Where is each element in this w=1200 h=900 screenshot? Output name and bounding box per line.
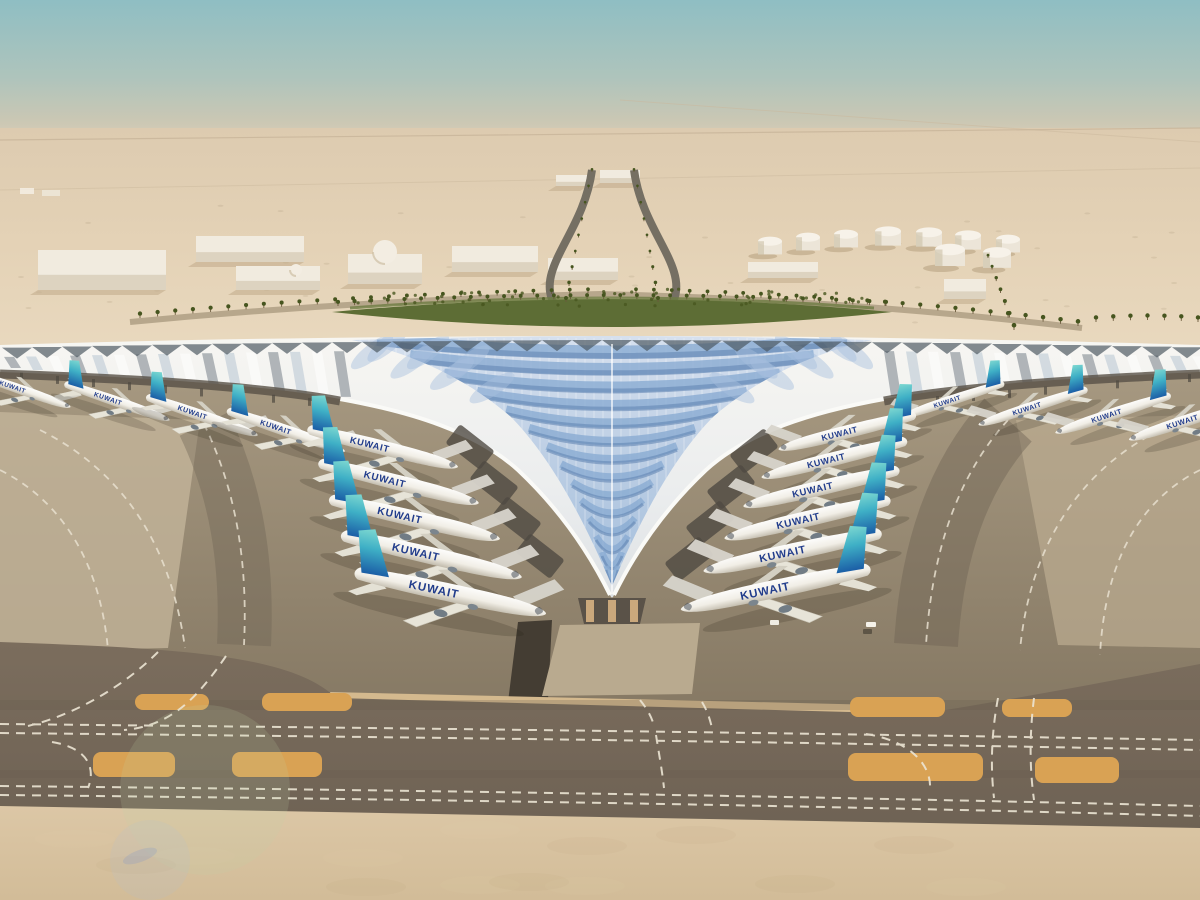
- palm-canopy: [1023, 313, 1027, 317]
- palm-canopy: [830, 296, 834, 300]
- dome: [290, 264, 302, 276]
- scene-svg: KUWAIT KUWAIT: [0, 0, 1200, 900]
- scrub: [18, 276, 24, 278]
- palm-canopy: [651, 265, 654, 268]
- scrub: [915, 286, 921, 288]
- palm-canopy: [552, 293, 556, 297]
- sand-island: [848, 753, 983, 781]
- vehicle-shadow: [863, 629, 872, 634]
- shrub: [574, 298, 577, 301]
- palm-canopy: [953, 306, 957, 310]
- shrub: [746, 295, 749, 298]
- scrub: [1151, 257, 1157, 259]
- palm-canopy: [535, 294, 539, 298]
- palm-canopy: [768, 295, 772, 299]
- palm-canopy: [564, 296, 568, 300]
- scrub: [1169, 232, 1175, 234]
- scrub: [85, 222, 91, 224]
- palm-canopy: [987, 254, 990, 257]
- shrub: [844, 301, 847, 304]
- palm-canopy: [795, 294, 799, 298]
- palm-canopy: [652, 293, 656, 297]
- palm-canopy: [818, 297, 822, 301]
- scrub: [1171, 282, 1177, 284]
- palm-canopy: [867, 299, 871, 303]
- palm-canopy: [244, 303, 248, 307]
- service-vehicle: [770, 620, 779, 625]
- building: [188, 236, 304, 267]
- palm-canopy: [723, 290, 727, 294]
- palm-canopy: [477, 291, 481, 295]
- sky: [0, 0, 1200, 140]
- palm-canopy: [138, 311, 142, 315]
- palm-canopy: [336, 300, 340, 304]
- pavement-stain: [545, 877, 625, 895]
- palm-canopy: [353, 299, 357, 303]
- shrub: [578, 305, 581, 308]
- palm-canopy: [486, 295, 490, 299]
- scrub: [819, 289, 825, 291]
- shrub: [823, 292, 826, 295]
- scrub: [303, 295, 309, 297]
- scrub: [1132, 236, 1138, 238]
- gate-mullion: [1044, 387, 1047, 395]
- gate-mullion: [1116, 380, 1119, 388]
- pavement-stain: [755, 875, 835, 893]
- sand-island: [1035, 757, 1119, 783]
- scrub: [1064, 305, 1070, 307]
- palm-canopy: [971, 307, 975, 311]
- palm-canopy: [469, 295, 473, 299]
- shrub: [740, 303, 743, 306]
- palm-canopy: [532, 289, 536, 293]
- entrance-column: [608, 600, 616, 622]
- palm-canopy: [851, 298, 855, 302]
- palm-canopy: [991, 265, 994, 268]
- palm-canopy: [995, 276, 998, 279]
- scrub: [324, 263, 330, 265]
- shrub: [706, 298, 709, 301]
- palm-canopy: [226, 304, 230, 308]
- palm-canopy: [191, 307, 195, 311]
- shrub: [677, 288, 680, 291]
- concrete-apron-left: [0, 412, 200, 652]
- palm-canopy: [988, 309, 992, 313]
- scrub: [1084, 212, 1090, 214]
- airport-rendering: KUWAIT KUWAIT: [0, 0, 1200, 900]
- palm-canopy: [801, 296, 805, 300]
- palm-canopy: [262, 302, 266, 306]
- palm-canopy: [668, 293, 672, 297]
- pavement-stain: [926, 878, 1006, 896]
- scrub: [646, 256, 652, 258]
- terminal-entrance: [578, 598, 646, 624]
- palm-canopy: [1128, 314, 1132, 318]
- palm-canopy: [706, 289, 710, 293]
- palm-canopy: [568, 288, 572, 292]
- palm-canopy: [567, 281, 571, 285]
- shrub: [433, 302, 436, 305]
- shrub: [693, 302, 696, 305]
- palm-canopy: [649, 250, 652, 253]
- palm-canopy: [423, 293, 427, 297]
- scrub: [26, 307, 32, 309]
- scrub: [728, 282, 734, 284]
- palm-canopy: [701, 294, 705, 298]
- sand-island: [850, 697, 945, 717]
- shrub: [357, 301, 360, 304]
- shrub: [441, 300, 444, 303]
- scrub: [398, 212, 404, 214]
- shrub: [507, 290, 510, 293]
- palm-canopy: [1145, 313, 1149, 317]
- scrub: [1161, 308, 1167, 310]
- shrub: [624, 303, 627, 306]
- palm-canopy: [591, 168, 594, 171]
- shrub: [767, 290, 770, 293]
- palm-canopy: [633, 168, 636, 171]
- palm-canopy: [685, 294, 689, 298]
- distant-structure: [42, 190, 60, 196]
- palm-canopy: [784, 296, 788, 300]
- shrub: [506, 303, 509, 306]
- palm-canopy: [777, 293, 781, 297]
- service-vehicle: [866, 622, 876, 627]
- palm-canopy: [550, 288, 554, 292]
- scrub: [912, 321, 918, 323]
- palm-canopy: [569, 293, 573, 297]
- pavement-stain: [874, 836, 954, 854]
- palm-canopy: [1012, 323, 1017, 328]
- palm-canopy: [1041, 315, 1045, 319]
- gate-mullion: [272, 395, 275, 403]
- scrub: [629, 276, 635, 278]
- palm-canopy: [656, 296, 660, 300]
- palm-canopy: [577, 233, 580, 236]
- palm-canopy: [1076, 319, 1081, 324]
- entrance-column: [586, 600, 594, 622]
- scrub: [1034, 247, 1040, 249]
- shrub: [488, 299, 491, 302]
- shrub: [542, 297, 545, 300]
- palm-canopy: [571, 265, 574, 268]
- palm-canopy: [519, 294, 523, 298]
- sand-island: [262, 693, 352, 711]
- palm-canopy: [636, 184, 639, 187]
- gate-mullion: [1188, 374, 1191, 382]
- palm-canopy: [1003, 299, 1007, 303]
- shrub: [556, 303, 559, 306]
- palm-canopy: [652, 288, 656, 292]
- palm-canopy: [1094, 315, 1098, 319]
- palm-canopy: [502, 294, 506, 298]
- palm-canopy: [1179, 314, 1183, 318]
- shrub: [383, 297, 386, 300]
- palm-canopy: [718, 294, 722, 298]
- palm-canopy: [280, 301, 284, 305]
- scrub: [1043, 299, 1049, 301]
- shrub: [392, 292, 395, 295]
- scrub: [632, 285, 638, 287]
- pavement-stain: [656, 826, 736, 844]
- pavement-stain: [323, 849, 403, 867]
- gate-mullion: [92, 379, 95, 387]
- palm-canopy: [155, 310, 159, 314]
- palm-canopy: [402, 297, 406, 301]
- palm-canopy: [441, 292, 445, 296]
- scrub: [218, 205, 224, 207]
- palm-canopy: [654, 281, 658, 285]
- palm-canopy: [646, 233, 649, 236]
- palm-canopy: [1162, 314, 1166, 318]
- palm-canopy: [459, 291, 463, 295]
- palm-canopy: [901, 301, 905, 305]
- palm-canopy: [999, 287, 1003, 291]
- scrub: [107, 301, 113, 303]
- building: [228, 266, 320, 295]
- palm-canopy: [587, 184, 590, 187]
- pavement-stain: [440, 821, 520, 839]
- palm-canopy: [812, 295, 816, 299]
- scrub: [278, 210, 284, 212]
- shrub: [557, 295, 560, 298]
- shrub: [613, 292, 616, 295]
- dome: [373, 240, 397, 264]
- palm-canopy: [513, 289, 517, 293]
- shrub: [857, 300, 860, 303]
- palm-canopy: [751, 295, 755, 299]
- palm-canopy: [297, 299, 301, 303]
- palm-canopy: [419, 296, 423, 300]
- palm-canopy: [635, 293, 639, 297]
- shrub: [413, 301, 416, 304]
- palm-canopy: [634, 287, 638, 291]
- shrub: [805, 296, 808, 299]
- shrub: [770, 290, 773, 293]
- palm-canopy: [585, 293, 589, 297]
- palm-canopy: [586, 287, 590, 291]
- palm-canopy: [173, 308, 177, 312]
- gate-mullion: [56, 376, 59, 384]
- palm-canopy: [918, 303, 922, 307]
- shrub: [511, 295, 514, 298]
- sand-island: [1002, 699, 1072, 717]
- shrub: [748, 301, 751, 304]
- central-stand: [542, 623, 700, 696]
- shrub: [463, 292, 466, 295]
- palm-canopy: [495, 290, 499, 294]
- palm-canopy: [602, 293, 606, 297]
- building: [740, 262, 818, 283]
- shrub: [481, 303, 484, 306]
- palm-canopy: [452, 295, 456, 299]
- palm-canopy: [1007, 311, 1011, 315]
- palm-canopy: [834, 298, 838, 302]
- palm-canopy: [1058, 317, 1063, 322]
- shrub: [666, 288, 669, 291]
- gate-mullion: [128, 382, 131, 390]
- palm-canopy: [405, 294, 409, 298]
- gate-mullion: [200, 388, 203, 396]
- scrub: [702, 237, 708, 239]
- palm-canopy: [741, 291, 745, 295]
- shrub: [602, 290, 605, 293]
- shrub: [655, 292, 658, 295]
- shrub: [414, 294, 417, 297]
- shrub: [745, 302, 748, 305]
- palm-canopy: [618, 293, 622, 297]
- palm-canopy: [574, 250, 577, 253]
- gate-mullion: [308, 398, 311, 406]
- shrub: [607, 298, 610, 301]
- palm-canopy: [315, 298, 319, 302]
- palm-canopy: [735, 295, 739, 299]
- scrub: [446, 266, 452, 268]
- palm-canopy: [759, 292, 763, 296]
- scrub: [520, 216, 526, 218]
- palm-canopy: [584, 201, 587, 204]
- shrub: [650, 298, 653, 301]
- shrub: [470, 291, 473, 294]
- palm-canopy: [209, 306, 213, 310]
- pavement-stain: [326, 878, 406, 896]
- palm-canopy: [580, 217, 583, 220]
- palm-canopy: [643, 217, 646, 220]
- shrub: [622, 292, 625, 295]
- shrub: [630, 290, 633, 293]
- distant-structure: [20, 188, 34, 194]
- scrub: [996, 230, 1002, 232]
- shrub: [462, 301, 465, 304]
- shrub: [860, 297, 863, 300]
- building: [30, 250, 166, 295]
- palm-canopy: [639, 201, 642, 204]
- building: [444, 246, 538, 277]
- palm-canopy: [884, 300, 888, 304]
- scrub: [964, 221, 970, 223]
- entrance-column: [630, 600, 638, 622]
- palm-canopy: [1111, 314, 1115, 318]
- pavement-stain: [547, 837, 627, 855]
- shrub: [835, 292, 838, 295]
- shrub: [653, 304, 656, 307]
- palm-canopy: [688, 289, 692, 293]
- palm-canopy: [670, 288, 674, 292]
- palm-canopy: [936, 304, 940, 308]
- pavement-stain: [35, 830, 115, 848]
- palm-canopy: [386, 298, 390, 302]
- palm-canopy: [436, 296, 440, 300]
- palm-canopy: [369, 298, 373, 302]
